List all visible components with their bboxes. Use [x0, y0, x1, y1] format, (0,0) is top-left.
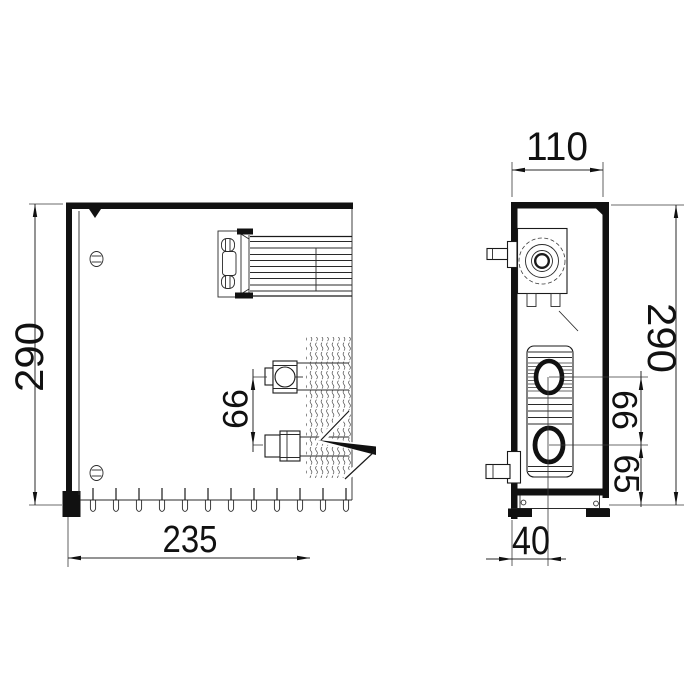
dimension-front-pipe-spacing: 66: [217, 369, 268, 452]
fan-end-tab-top: [237, 229, 253, 235]
left-foot: [63, 491, 81, 517]
fan-clamp-top: [222, 239, 235, 252]
dim-front-pipe-spacing-label: 66: [217, 389, 256, 429]
base-bracket: [508, 496, 610, 518]
dim-side-depth-label: 110: [526, 125, 588, 169]
fan-motor: [518, 229, 579, 332]
technical-drawing-page: 290 235 66 110 290: [0, 0, 700, 700]
motor-leg-left: [527, 294, 536, 307]
side-bottom-panel: [517, 489, 603, 496]
heat-exchanger-core: [527, 346, 573, 477]
fin-hatch-area: [306, 337, 351, 478]
corner-fold-mark: [89, 209, 101, 218]
dim-front-width-label: 235: [163, 519, 218, 561]
dimension-side-pipe-axis: 40: [486, 519, 566, 566]
side-top-cover: [511, 202, 609, 209]
dim-side-pipe-axis-label: 40: [512, 519, 550, 563]
heat-exchanger-fins: [297, 337, 351, 478]
base-hole-right: [594, 501, 599, 506]
top-cover: [66, 203, 353, 210]
pipe-fitting-upper: [265, 361, 303, 393]
mounting-screw-top: [90, 252, 103, 267]
fan-motor-body: [223, 252, 237, 276]
drain-fitting: [486, 452, 521, 484]
dim-front-height-label: 290: [8, 322, 52, 392]
dimension-front-height: 290: [8, 204, 63, 505]
fan-assembly: [218, 229, 352, 299]
crossflow-fan-cylinder: [250, 237, 352, 297]
dimension-side-depth: 110: [512, 125, 603, 197]
fan-clamp-bottom: [222, 276, 235, 289]
base-foot-left: [508, 509, 532, 518]
mounting-screw-bottom: [90, 466, 103, 481]
fan-motor-bracket: [218, 231, 241, 297]
front-panel-edge: [66, 203, 72, 497]
motor-leg-right: [551, 294, 560, 307]
dim-side-height-label: 290: [639, 303, 683, 373]
base-foot-right: [586, 509, 610, 518]
technical-drawing: 290 235 66 110 290: [0, 0, 700, 700]
dimension-front-width: 235: [68, 517, 310, 567]
front-view: [63, 203, 377, 518]
base-hole-left: [521, 500, 526, 505]
pipe-fitting-lower: [265, 431, 300, 461]
side-view: [486, 202, 610, 566]
motor-shaft: [487, 242, 517, 268]
dim-side-pipe-to-base-label: 65: [607, 455, 646, 494]
leader-line: [559, 311, 578, 331]
dim-side-pipe-spacing-label: 66: [605, 390, 644, 430]
